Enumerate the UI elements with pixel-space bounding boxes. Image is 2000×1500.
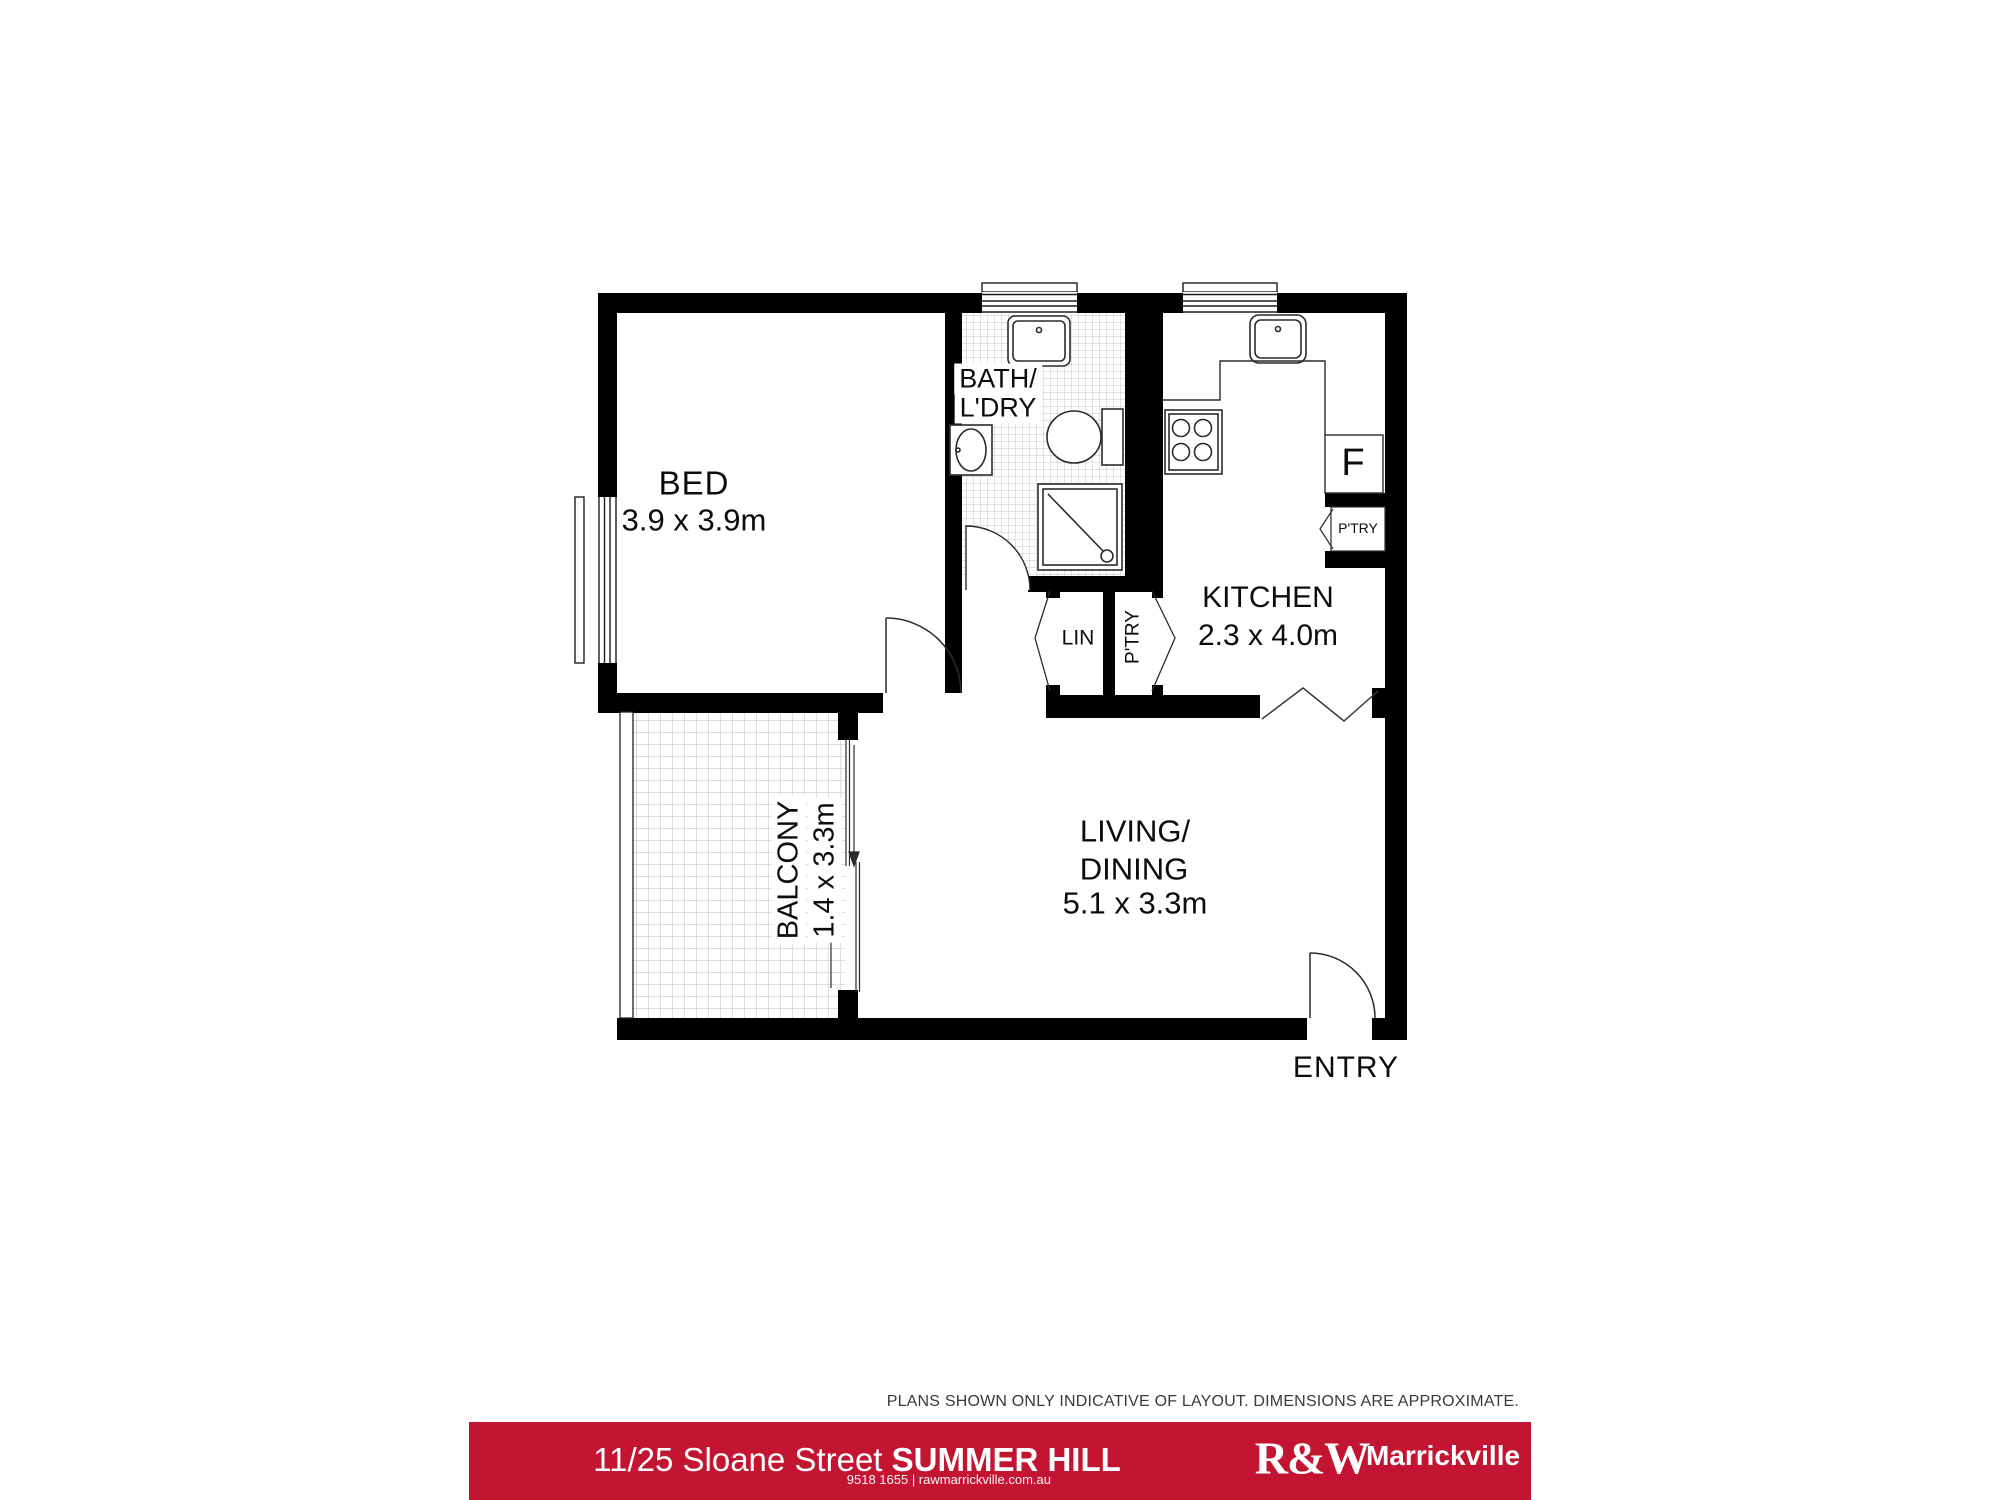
brand-office-name: Marrickville: [1366, 1440, 1520, 1472]
cooktop-icon: [1165, 410, 1222, 474]
kitchen-sink-icon: [1250, 315, 1306, 363]
kitchen-room-label: KITCHEN: [1202, 583, 1334, 613]
pantry-closet-label: P'TRY: [1124, 610, 1143, 664]
balcony-label: BALCONY: [773, 796, 806, 945]
living-room-dims: 5.1 x 3.3m: [1063, 888, 1208, 919]
entry-door: [1310, 953, 1375, 1018]
entry-label: ENTRY: [1293, 1053, 1399, 1083]
bath-room-label-line2: L'DRY: [955, 393, 1042, 424]
fridge-label: F: [1341, 444, 1364, 482]
bath-window-sill: [982, 283, 1077, 292]
living-room-label-line1: LIVING/: [1080, 816, 1190, 847]
shower-icon: [1038, 484, 1122, 570]
toilet-icon: [1047, 409, 1123, 465]
disclaimer-text: PLANS SHOWN ONLY INDICATIVE OF LAYOUT. D…: [887, 1393, 1519, 1411]
bed-room-dims: 3.9 x 3.9m: [622, 505, 767, 536]
bed-room-label: BED: [659, 467, 730, 500]
rw-logo: R&W: [1255, 1432, 1370, 1485]
linen-bifold: [1035, 591, 1050, 691]
living-room-label-line2: DINING: [1080, 854, 1189, 885]
balcony-dims: 1.4 x 3.3m: [809, 797, 842, 942]
pantry-niche-label: P'TRY: [1338, 521, 1378, 535]
balcony-railing: [620, 712, 633, 1018]
bedroom-window-sill: [575, 497, 584, 663]
kitchen-fixtures: [1163, 315, 1385, 551]
floorplan-page: BED 3.9 x 3.9m BATH/ L'DRY KITCHEN 2.3 x…: [0, 0, 2000, 1500]
linen-closet-label: LIN: [1062, 628, 1095, 649]
floorplan-drawing: [0, 0, 2000, 1500]
kitchen-opening-zigzag: [1262, 688, 1378, 721]
bath-room-label-line1: BATH/: [954, 364, 1042, 395]
kitchen-room-dims: 2.3 x 4.0m: [1198, 621, 1338, 651]
brand-contact-line: 9518 1655 | rawmarrickville.com.au: [847, 1472, 1051, 1487]
laundry-tub-icon: [1008, 316, 1070, 366]
pantry-closet-bifold: [1152, 591, 1175, 691]
basin-icon: [950, 425, 992, 475]
kitchen-window-sill: [1183, 283, 1277, 292]
address-street: 11/25 Sloane Street: [593, 1441, 882, 1478]
